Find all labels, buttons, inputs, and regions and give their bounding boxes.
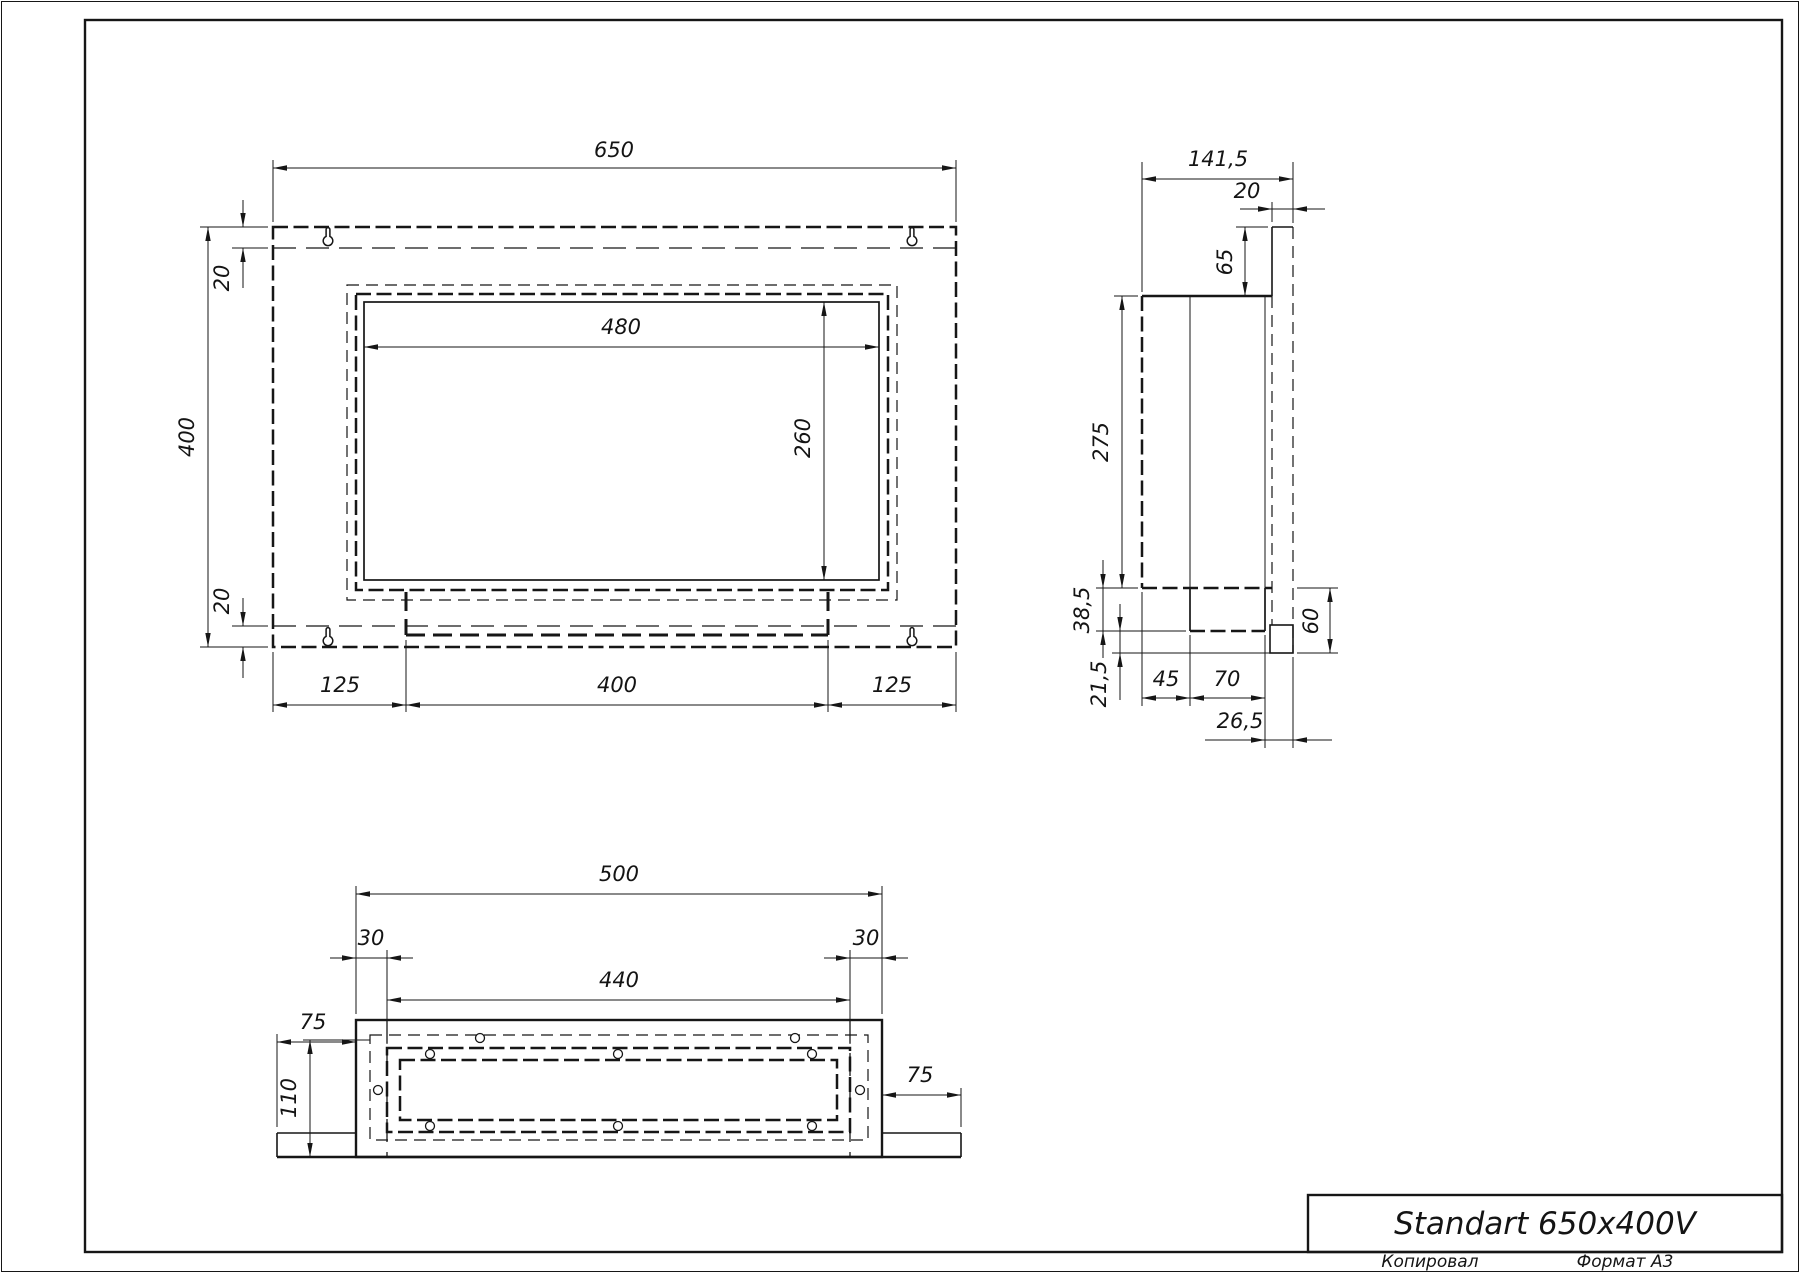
format-label: Формат A3: [1577, 1252, 1674, 1272]
bottom-burner-frame-inner: [400, 1060, 837, 1120]
sheet-frame: [2, 2, 1799, 1272]
arrowhead: [821, 302, 826, 316]
dim-front-burner-width: 400: [597, 673, 637, 697]
arrowhead: [205, 227, 210, 241]
arrowhead: [814, 702, 828, 707]
arrowhead: [1327, 588, 1332, 602]
arrowhead: [1176, 695, 1190, 700]
arrowhead: [1258, 206, 1272, 211]
arrowhead: [240, 213, 245, 227]
dim-front-right-margin: 125: [872, 673, 912, 697]
fastener-hole: [808, 1122, 817, 1131]
dim-front-overall-width: 650: [594, 138, 634, 162]
dim-bottom-edge-inset-right: 30: [853, 926, 880, 950]
side-flange-foot: [1270, 625, 1293, 653]
arrowhead: [1119, 296, 1124, 310]
arrowhead: [836, 997, 850, 1002]
technical-drawing: 650 400 20 20 480 260 125: [0, 0, 1800, 1273]
keyhole-slot: [323, 628, 333, 646]
sheet-border: [2, 2, 1799, 1272]
dim-side-body-height: 275: [1089, 422, 1113, 462]
bottom-body-outline: [356, 1020, 882, 1157]
arrowhead: [240, 248, 245, 262]
arrowhead: [273, 165, 287, 170]
arrowhead: [307, 1143, 312, 1157]
arrowhead: [392, 702, 406, 707]
arrowhead: [273, 702, 287, 707]
dim-bottom-flange-left: 75: [300, 1010, 327, 1034]
arrowhead: [240, 612, 245, 626]
arrowhead: [1251, 695, 1265, 700]
arrowhead: [942, 165, 956, 170]
arrowhead: [1142, 176, 1156, 181]
fastener-hole: [808, 1050, 817, 1059]
arrowhead: [947, 1092, 961, 1097]
dim-front-overall-height: 400: [175, 417, 199, 457]
fastener-hole: [614, 1050, 623, 1059]
fastener-hole: [614, 1122, 623, 1131]
dim-bottom-body-width: 500: [599, 862, 639, 886]
fastener-hole: [426, 1122, 435, 1131]
arrowhead: [1242, 227, 1247, 241]
arrowhead: [1100, 631, 1105, 645]
dim-side-overall-depth: 141,5: [1188, 147, 1248, 171]
arrowhead: [240, 647, 245, 661]
arrowhead: [1327, 639, 1332, 653]
fastener-hole: [426, 1050, 435, 1059]
fastener-hole: [476, 1034, 485, 1043]
arrowhead: [356, 891, 370, 896]
dim-side-spout-offset: 26,5: [1217, 709, 1264, 733]
arrowhead: [1119, 574, 1124, 588]
copied-label: Копировал: [1381, 1252, 1478, 1272]
arrowhead: [882, 1092, 896, 1097]
bottom-view: 500 30 30 440 75 110 75: [277, 862, 961, 1157]
dim-side-burner-depth: 70: [1214, 667, 1241, 691]
arrowhead: [387, 997, 401, 1002]
dim-side-top-drop: 65: [1213, 249, 1237, 276]
keyhole-slot: [907, 628, 917, 646]
arrowhead: [342, 955, 356, 960]
arrowhead: [1117, 653, 1122, 667]
dim-front-opening-height: 260: [791, 418, 815, 458]
dim-front-left-margin: 125: [320, 673, 360, 697]
arrowhead: [1100, 574, 1105, 588]
arrowhead: [942, 702, 956, 707]
arrowhead: [277, 1039, 291, 1044]
fastener-hole: [374, 1086, 383, 1095]
dim-front-bottom-inset: 20: [210, 588, 234, 615]
arrowhead: [205, 633, 210, 647]
dim-front-opening-width: 480: [601, 315, 641, 339]
arrowhead: [868, 891, 882, 896]
arrowhead: [1251, 737, 1265, 742]
arrowhead: [1293, 206, 1307, 211]
arrowhead: [387, 955, 401, 960]
drawing-title: Standart 650x400V: [1394, 1206, 1699, 1242]
side-view: 141,5 20 65 275 38,5 21,5: [1070, 147, 1338, 748]
arrowhead: [364, 344, 378, 349]
dim-front-top-inset: 20: [210, 265, 234, 292]
dim-bottom-flange-right: 75: [907, 1063, 934, 1087]
keyhole-slot: [323, 228, 333, 246]
arrowhead: [1190, 695, 1204, 700]
arrowhead: [1242, 282, 1247, 296]
arrowhead: [836, 955, 850, 960]
front-plate-outline: [273, 227, 956, 647]
arrowhead: [1279, 176, 1293, 181]
keyhole-slot: [907, 228, 917, 246]
title-block: Standart 650x400V Копировал Формат A3: [1308, 1195, 1782, 1272]
arrowhead: [1117, 617, 1122, 631]
dim-bottom-edge-inset-left: 30: [358, 926, 385, 950]
dim-bottom-bolt-span: 440: [599, 968, 639, 992]
dim-side-burner-setback: 45: [1153, 667, 1180, 691]
dim-side-tray-drop: 38,5: [1070, 587, 1094, 634]
front-view: 650 400 20 20 480 260 125: [175, 138, 956, 712]
dim-side-skirt-height: 60: [1299, 608, 1323, 635]
arrowhead: [1293, 737, 1307, 742]
drawing-frame: [85, 20, 1782, 1252]
fastener-hole: [856, 1086, 865, 1095]
arrowhead: [821, 566, 826, 580]
drawing-sheet: 650 400 20 20 480 260 125: [0, 0, 1800, 1273]
dim-side-tray-clearance: 21,5: [1087, 661, 1111, 708]
dim-bottom-body-depth: 110: [277, 1078, 301, 1118]
dim-side-flange-depth: 20: [1234, 179, 1261, 203]
arrowhead: [882, 955, 896, 960]
arrowhead: [406, 702, 420, 707]
arrowhead: [865, 344, 879, 349]
arrowhead: [828, 702, 842, 707]
arrowhead: [1142, 695, 1156, 700]
fastener-hole: [791, 1034, 800, 1043]
